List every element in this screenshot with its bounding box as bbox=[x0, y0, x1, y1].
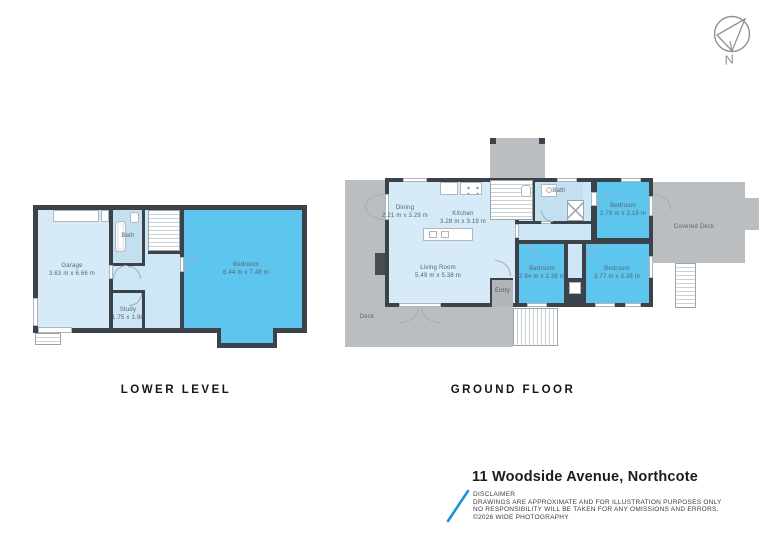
sink-icon bbox=[429, 231, 437, 238]
ground-floor-title: GROUND FLOOR bbox=[413, 384, 613, 396]
deck-label: Deck bbox=[347, 313, 387, 321]
bedroom-label: Bedroom 6.44 m x 7.48 m bbox=[208, 261, 284, 277]
wall bbox=[519, 221, 591, 224]
fridge-icon bbox=[440, 182, 458, 195]
post bbox=[539, 138, 545, 144]
property-address: 11 Woodside Avenue, Northcote bbox=[472, 469, 698, 485]
lower-level-plan: Garage 3.63 m x 6.66 m Bath Study 1.75 x… bbox=[33, 205, 307, 348]
outside-step bbox=[35, 333, 61, 345]
garage-label: Garage 3.63 m x 6.66 m bbox=[37, 262, 107, 278]
window bbox=[403, 178, 427, 182]
porch-area bbox=[490, 138, 545, 178]
dining-label: Dining 2.21 m x 3.29 m bbox=[370, 204, 440, 220]
disclaimer-copyright: ©2026 WIDE PHOTOGRAPHY bbox=[473, 514, 722, 522]
fireplace-icon bbox=[375, 253, 385, 275]
covered-deck-bump bbox=[743, 198, 759, 230]
room-bedroom-bay bbox=[221, 326, 273, 343]
disclaimer-line: NO RESPONSIBILITY WILL BE TAKEN FOR ANY … bbox=[473, 506, 722, 514]
door-opening bbox=[515, 224, 519, 238]
disclaimer-block: DISCLAIMER DRAWINGS ARE APPROXIMATE AND … bbox=[473, 491, 722, 521]
study-label: Study 1.75 x 1.98 bbox=[110, 306, 146, 322]
wall bbox=[533, 182, 535, 223]
floorplan-page: N Garage 3.63 m x 6.66 m bbox=[0, 0, 768, 537]
window bbox=[621, 178, 641, 182]
window bbox=[625, 303, 641, 307]
bath-label: Bath bbox=[110, 232, 146, 240]
laundry-unit-icon bbox=[101, 210, 109, 222]
north-label: N bbox=[723, 51, 736, 68]
wall bbox=[148, 251, 180, 254]
toilet-icon bbox=[130, 212, 139, 223]
toilet-icon bbox=[521, 185, 531, 197]
disclaimer-line: DRAWINGS ARE APPROXIMATE AND FOR ILLUSTR… bbox=[473, 499, 722, 507]
covered-deck-label: Covered Deck bbox=[663, 223, 725, 231]
bedroom-right-label: Bedroom 3.77 m x 3.38 m bbox=[583, 265, 651, 281]
bedroom-top-label: Bedroom 2.79 m x 3.19 m bbox=[591, 202, 655, 218]
stairs bbox=[675, 263, 696, 308]
shower-icon bbox=[567, 200, 584, 221]
window bbox=[595, 303, 615, 307]
post bbox=[490, 138, 496, 144]
window bbox=[557, 178, 577, 182]
disclaimer-title: DISCLAIMER bbox=[473, 491, 722, 499]
lower-level-title: LOWER LEVEL bbox=[76, 384, 276, 396]
living-room-label: Living Room 5.49 m x 5.38 m bbox=[403, 264, 473, 280]
stairs bbox=[513, 308, 558, 346]
stove-icon bbox=[460, 182, 482, 195]
sink-icon bbox=[441, 231, 449, 238]
stairs bbox=[148, 210, 180, 251]
logo-slash-icon bbox=[445, 488, 471, 524]
ground-floor-plan: Dining 2.21 m x 3.29 m Kitchen 3.28 m x … bbox=[345, 136, 768, 348]
closet-icon bbox=[569, 282, 581, 294]
window bbox=[527, 303, 547, 307]
bedroom-mid-label: Bedroom 2.94 m x 3.38 m bbox=[509, 265, 575, 281]
door-opening bbox=[33, 298, 38, 326]
entry-label: Entry bbox=[482, 287, 523, 295]
bath-label: Bath bbox=[542, 187, 576, 195]
north-compass-icon: N bbox=[705, 8, 759, 68]
kitchen-label: Kitchen 3.28 m x 3.19 m bbox=[431, 210, 495, 226]
workbench-icon bbox=[53, 210, 99, 222]
